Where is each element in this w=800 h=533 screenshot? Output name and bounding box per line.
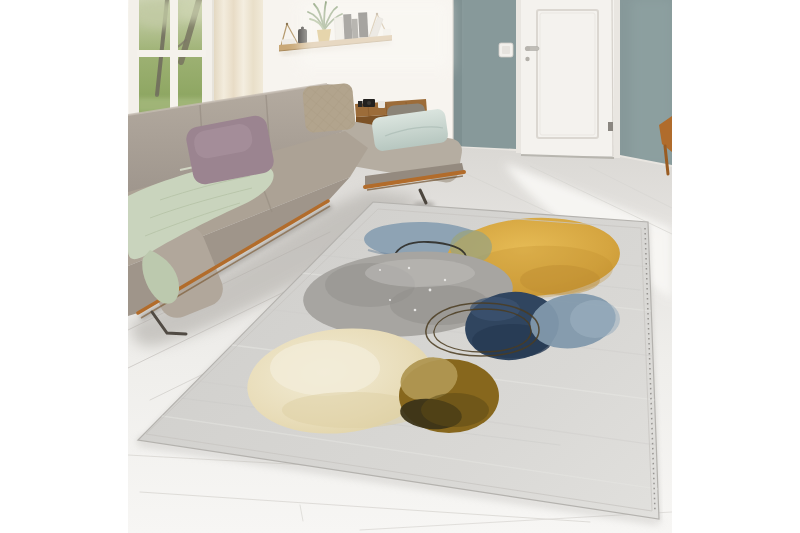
light-switch bbox=[499, 43, 513, 57]
cushion-taupe bbox=[302, 83, 356, 133]
product-photo bbox=[0, 0, 800, 533]
rug-cream-light bbox=[270, 340, 380, 396]
rug-gray-highlight bbox=[365, 259, 475, 287]
interior-door bbox=[516, 0, 620, 158]
camera-lens bbox=[367, 101, 371, 105]
wall-light-glow bbox=[300, 0, 450, 70]
door-frame-right bbox=[613, 0, 620, 158]
door-slab bbox=[521, 0, 614, 156]
cushion-taupe-quilting bbox=[302, 83, 356, 133]
rug-yellow-dark-patch bbox=[520, 265, 600, 295]
rug-steel-fade bbox=[570, 300, 620, 338]
black-cup bbox=[358, 101, 363, 107]
rug-olive-core bbox=[421, 393, 489, 427]
teal-wall-corner-shade bbox=[453, 0, 462, 150]
white-cup bbox=[378, 101, 385, 108]
door-hinge bbox=[608, 122, 613, 131]
sheer-curtain bbox=[214, 0, 263, 108]
door-keyhole bbox=[525, 57, 529, 61]
